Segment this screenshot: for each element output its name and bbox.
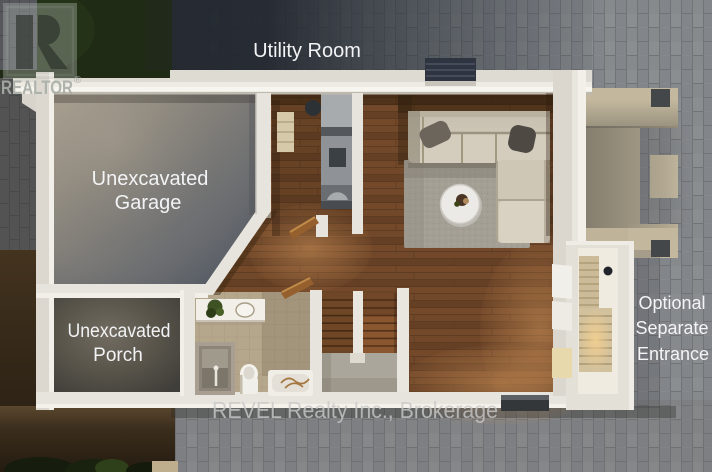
svg-text:®: ®	[74, 75, 82, 86]
svg-text:Unexcavated: Unexcavated	[92, 168, 209, 190]
svg-text:Unexcavated: Unexcavated	[68, 321, 171, 342]
svg-text:Garage: Garage	[115, 192, 182, 214]
svg-text:Optional: Optional	[638, 293, 705, 313]
svg-text:REVEL Realty Inc., Brokerage: REVEL Realty Inc., Brokerage	[212, 397, 498, 423]
svg-text:Entrance: Entrance	[637, 344, 709, 364]
svg-text:Separate: Separate	[635, 318, 708, 338]
svg-text:Utility Room: Utility Room	[253, 40, 361, 62]
svg-text:Porch: Porch	[93, 345, 143, 366]
svg-text:REALTOR: REALTOR	[1, 78, 73, 99]
